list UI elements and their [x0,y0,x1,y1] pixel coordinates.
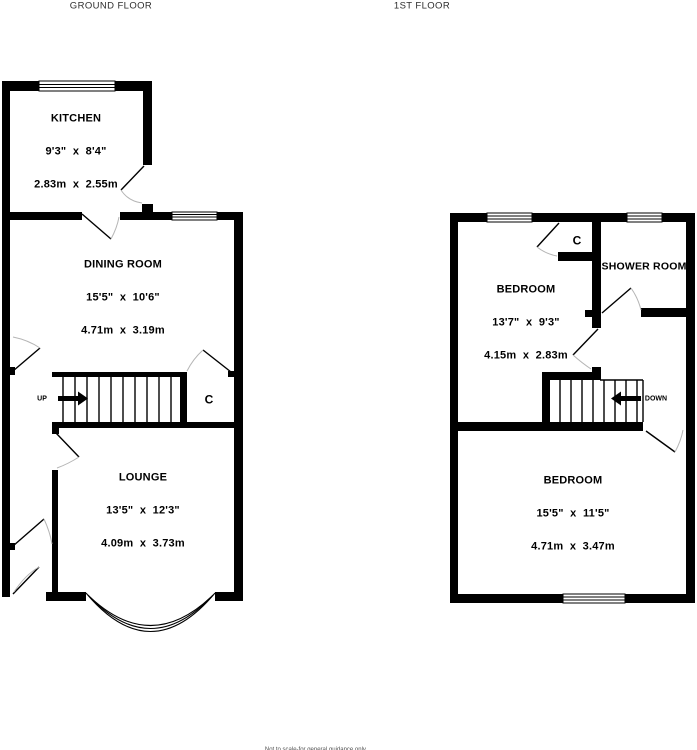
shower-room-window [627,213,662,222]
room-size-ft: 13'5" x 12'3" [101,506,185,517]
room-name: KITCHEN [34,114,118,125]
wall-segment [52,422,59,434]
up-label: UP [37,396,47,403]
kitchen-dining-door-swing [82,214,119,239]
dining-window [172,212,217,220]
bedroom2-door-swing [646,430,683,452]
wall-segment [686,213,695,603]
wall-segment [592,222,601,328]
wall-segment [8,543,15,550]
bedroom1-window [487,213,532,222]
wall-segment [2,81,39,91]
bedroom2-window [563,594,625,603]
wall-segment [450,213,458,603]
dining-hall-door-swing [13,337,40,371]
wall-segment [532,213,627,222]
first-cupboard-label: C [573,236,582,247]
kitchen-window [39,81,115,91]
ground-cupboard-label: C [205,395,214,406]
wall-segment [215,592,243,601]
wall-segment [558,252,592,261]
floorplan-page: GROUND FLOOR 1ST FLOOR KITCHEN 9'3" x 8'… [0,0,697,750]
shower-room-label: SHOWER ROOM [601,262,686,273]
wall-segment [458,422,643,431]
wall-segment [52,422,234,428]
wall-segment [450,213,487,222]
lounge-label: LOUNGE 13'5" x 12'3" 4.09m x 3.73m [101,451,185,572]
bedroom1-door-swing [573,329,598,369]
hall-inner-door-swing [13,519,52,546]
wall-segment [2,81,10,597]
wall-segment [450,594,563,603]
wall-segment [234,212,243,601]
room-size-m: 4.71m x 3.47m [531,542,615,553]
bedroom2-label: BEDROOM 15'5" x 11'5" 4.71m x 3.47m [531,454,615,575]
wall-segment [641,308,686,317]
wall-segment [2,212,82,220]
wall-segment [228,371,235,377]
cupboard-door-swing [537,223,559,256]
bedroom1-label: BEDROOM 13'7" x 9'3" 4.15m x 2.83m [484,263,568,384]
first-floor-title: 1ST FLOOR [394,1,450,12]
down-label: DOWN [645,396,667,403]
lounge-door-swing [56,433,79,468]
disclaimer: Not to scale-for general guidance only. … [265,733,367,750]
wall-segment [592,367,601,380]
room-name: BEDROOM [484,285,568,296]
shower-room-door-swing [602,288,641,313]
wall-segment [180,372,187,428]
room-name: DINING ROOM [81,260,165,271]
wall-segment [52,470,58,600]
ground-floor-title: GROUND FLOOR [70,1,152,12]
room-size-ft: 15'5" x 10'6" [81,293,165,304]
front-door-swing [13,567,39,594]
staircase-down [560,380,643,422]
room-name: LOUNGE [101,473,185,484]
kitchen-side-door-swing [121,166,144,203]
dining-room-label: DINING ROOM 15'5" x 10'6" 4.71m x 3.19m [81,238,165,359]
kitchen-label: KITCHEN 9'3" x 8'4" 2.83m x 2.55m [34,92,118,213]
staircase-up [58,377,171,422]
room-size-m: 2.83m x 2.55m [34,180,118,191]
room-size-ft: 15'5" x 11'5" [531,509,615,520]
room-name: BEDROOM [531,476,615,487]
room-size-ft: 9'3" x 8'4" [34,147,118,158]
room-size-m: 4.15m x 2.83m [484,351,568,362]
wall-segment [143,81,152,165]
room-size-m: 4.09m x 3.73m [101,539,185,550]
wall-segment [625,594,695,603]
wall-segment [120,212,172,220]
wall-segment [46,592,86,601]
room-size-m: 4.71m x 3.19m [81,326,165,337]
wall-segment [662,213,695,222]
room-size-ft: 13'7" x 9'3" [484,318,568,329]
cupboard-door-swing [187,350,231,372]
wall-segment [585,310,592,317]
wall-segment [52,372,187,377]
bay-window [86,593,215,632]
